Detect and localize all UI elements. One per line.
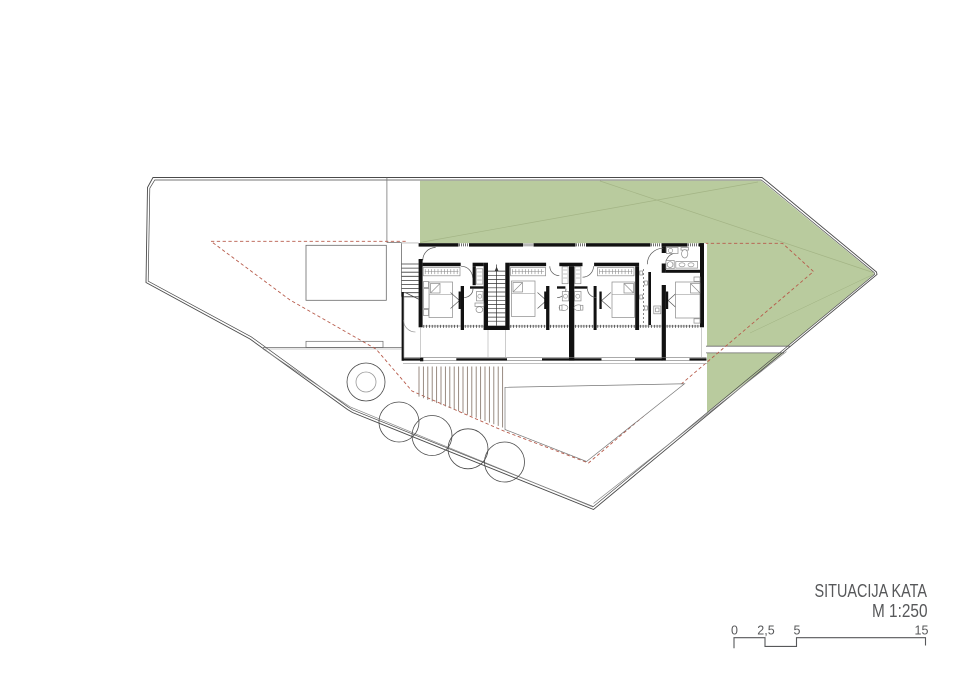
svg-text:15: 15: [915, 623, 929, 637]
svg-text:M 1:250: M 1:250: [872, 601, 928, 621]
svg-text:2,5: 2,5: [757, 623, 774, 637]
svg-text:5: 5: [794, 623, 801, 637]
svg-text:0: 0: [731, 623, 738, 637]
svg-text:SITUACIJA KATA: SITUACIJA KATA: [815, 581, 928, 601]
